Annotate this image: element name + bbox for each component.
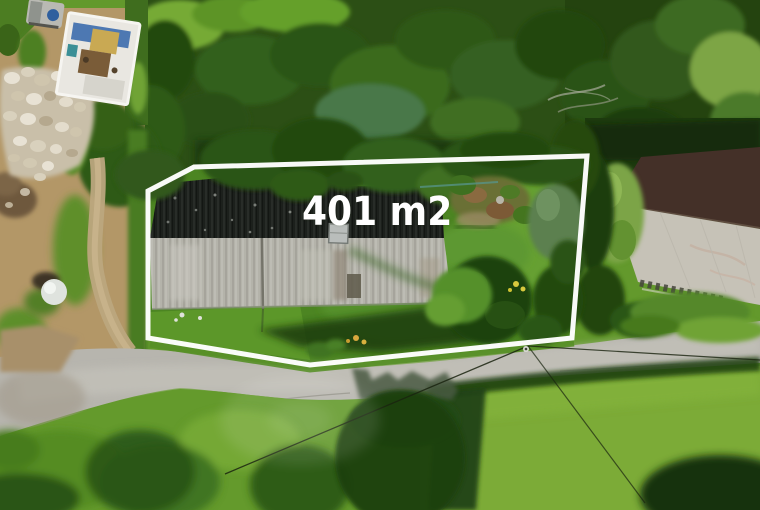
roof-seam (262, 238, 263, 309)
aerial-photo-scene (0, 0, 760, 510)
roof-hatch (347, 274, 361, 298)
covered-work-table (56, 13, 140, 105)
yellow-cover (89, 28, 119, 54)
trailer-with-blue-barrel (26, 0, 65, 29)
aerial-photo: 401 m2 (0, 0, 760, 510)
lens-flare (220, 375, 380, 465)
area-label: 401 m2 (302, 192, 452, 232)
